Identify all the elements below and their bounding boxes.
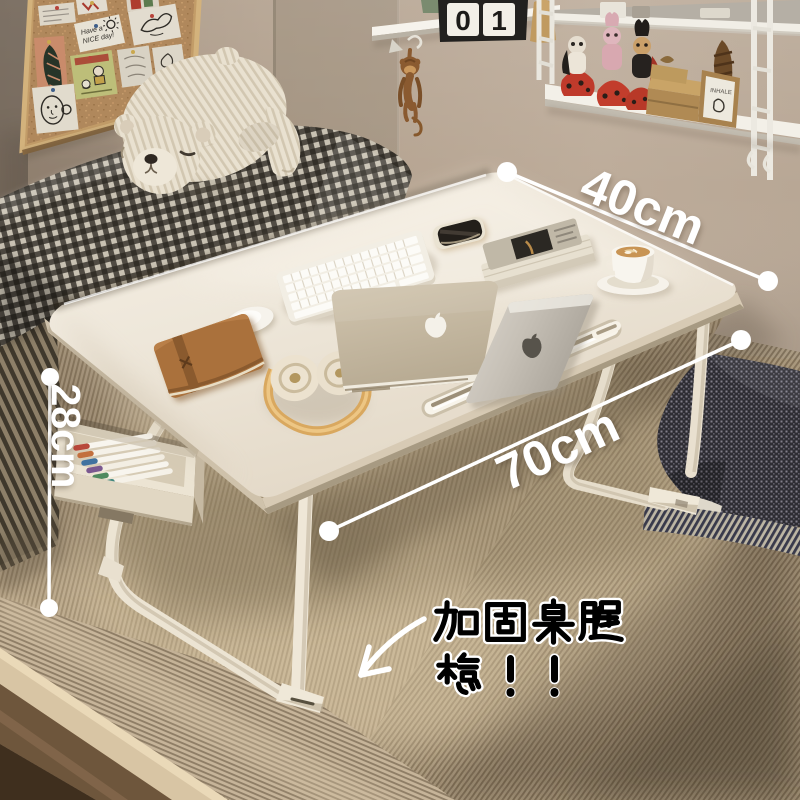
svg-text:1: 1 xyxy=(491,5,507,36)
svg-text:28cm: 28cm xyxy=(43,384,89,489)
svg-text:0: 0 xyxy=(455,5,471,36)
